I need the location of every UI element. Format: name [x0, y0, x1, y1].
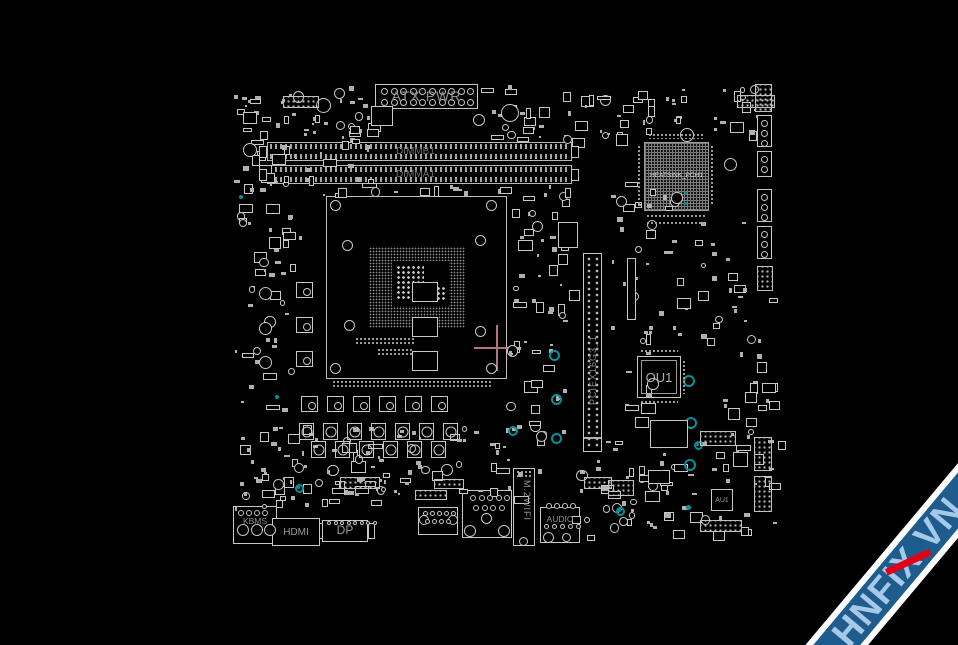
smd-pad — [550, 344, 553, 346]
smd-component — [638, 91, 648, 100]
smd-pad — [320, 152, 322, 157]
smd-pad — [304, 129, 309, 132]
connector-pin — [430, 511, 435, 516]
smd-pad — [350, 101, 355, 103]
smd-pad — [496, 450, 499, 454]
smd-pad — [408, 470, 412, 475]
smd-pad — [600, 130, 602, 133]
vrm-choke — [405, 396, 422, 412]
connector-pin — [576, 524, 581, 529]
mounting-hole — [551, 433, 562, 444]
connector-pin — [560, 524, 565, 529]
capacitor — [456, 461, 462, 467]
pad-row — [377, 348, 413, 357]
smd-component — [491, 135, 503, 140]
connector-pin — [761, 214, 768, 221]
smd-pad — [291, 496, 295, 500]
smd-component — [615, 441, 622, 445]
capacitor — [315, 479, 323, 487]
capacitor — [330, 363, 341, 374]
smd-pad — [568, 111, 572, 116]
smd-pad — [646, 263, 649, 266]
capacitor — [259, 322, 272, 335]
smd-pad — [245, 105, 247, 108]
smd-pad — [356, 177, 362, 181]
smd-pad — [450, 185, 453, 189]
connector-pin — [423, 511, 428, 516]
component-outline — [571, 146, 579, 158]
pad-row — [646, 214, 706, 219]
smd-pad — [348, 164, 354, 168]
smd-pad — [363, 104, 368, 109]
vrm-capacitor — [347, 423, 362, 440]
pad-row — [682, 360, 687, 394]
smd-pad — [248, 222, 251, 225]
smd-pad — [241, 437, 244, 440]
smd-component — [558, 254, 568, 265]
connector-pin — [761, 130, 768, 137]
ou1-chip-label: OU1 — [637, 371, 681, 384]
connector-pin — [761, 120, 768, 127]
capacitor — [273, 479, 284, 490]
smd-pad — [548, 311, 553, 315]
smd-pad — [348, 491, 354, 495]
smd-pad — [742, 222, 746, 224]
smd-pad — [464, 191, 469, 195]
smd-component — [531, 380, 543, 388]
smd-component — [383, 473, 390, 479]
vrm-choke — [327, 396, 344, 412]
vrm-choke — [296, 282, 313, 298]
smd-component — [323, 159, 337, 167]
smd-pad — [712, 252, 718, 256]
smd-pad — [342, 136, 345, 138]
capacitor — [259, 258, 268, 267]
smd-pad — [304, 133, 307, 136]
mounting-hole — [549, 350, 560, 361]
component-outline — [368, 523, 375, 539]
component-outline — [648, 470, 670, 484]
via — [696, 443, 699, 446]
smd-pad — [744, 320, 748, 322]
capacitor — [381, 487, 386, 492]
smd-pad — [474, 431, 479, 434]
smd-component — [627, 519, 633, 525]
capacitor — [344, 320, 355, 331]
pad-row — [646, 221, 706, 225]
connector-pin — [446, 519, 451, 524]
smd-component — [552, 212, 558, 221]
smd-component — [539, 107, 549, 119]
smd-pad — [734, 309, 737, 314]
smd-pad — [264, 269, 266, 273]
vrm-capacitor — [311, 441, 326, 458]
capacitor — [629, 512, 636, 519]
smd-component — [707, 338, 715, 346]
smd-pad — [653, 526, 657, 529]
mounting-hole — [684, 459, 696, 471]
atx-power-label: ATX PWR — [375, 89, 478, 103]
smd-pad — [394, 191, 398, 193]
capacitor — [336, 121, 345, 130]
audio-label: AUDIO — [540, 515, 580, 524]
vrm-choke — [431, 396, 448, 412]
smd-component — [620, 120, 629, 128]
smd-pad — [503, 446, 506, 448]
smd-pad — [234, 95, 238, 100]
smd-pad — [758, 339, 762, 342]
smd-pad — [394, 490, 398, 493]
smd-pad — [248, 100, 251, 102]
smd-component — [290, 264, 297, 272]
pad-row — [648, 133, 704, 139]
smd-pad — [459, 189, 463, 192]
capacitor — [486, 200, 497, 211]
smd-component — [728, 408, 740, 420]
smd-component — [650, 189, 656, 196]
smd-pad — [563, 389, 567, 393]
connector-pin — [373, 521, 377, 525]
smd-pad — [623, 282, 626, 286]
smd-pad — [288, 218, 292, 220]
pin-header — [415, 490, 447, 500]
vrm-choke — [296, 317, 313, 333]
smd-pad — [726, 258, 729, 261]
smd-pad — [538, 469, 543, 474]
smd-component — [420, 188, 430, 196]
connector-pin — [479, 495, 485, 501]
smd-pad — [611, 326, 615, 331]
smd-pad — [723, 89, 726, 92]
connector-pin — [504, 495, 510, 501]
connector-pin — [437, 511, 442, 516]
connector-pin — [562, 503, 568, 509]
smd-pad — [517, 347, 521, 350]
smd-component — [283, 240, 288, 249]
smd-component — [625, 405, 639, 411]
smd-pad — [744, 513, 750, 517]
capacitor — [249, 286, 256, 293]
smd-pad — [563, 320, 568, 322]
connector-pin — [444, 511, 449, 516]
smd-component — [728, 273, 738, 281]
smd-pad — [666, 97, 669, 101]
smd-pad — [672, 99, 676, 102]
smd-component — [260, 131, 268, 139]
smd-pad — [371, 466, 376, 468]
capacitor — [543, 532, 554, 543]
pin-header — [755, 84, 772, 112]
connector-pin — [499, 505, 505, 511]
connector-pin — [761, 241, 768, 248]
smd-pad — [384, 480, 386, 484]
capacitor — [671, 192, 683, 204]
smd-pad — [284, 455, 290, 458]
smd-pad — [269, 228, 273, 231]
smd-component — [526, 108, 531, 119]
smd-pad — [524, 341, 527, 344]
capacitor — [475, 235, 486, 246]
smd-component — [665, 206, 672, 211]
capacitor — [259, 287, 272, 300]
smd-pad — [663, 195, 667, 200]
smd-component — [646, 230, 656, 238]
component-outline — [259, 169, 267, 181]
via — [275, 395, 279, 399]
au1-chip-label: AU1 — [711, 497, 733, 504]
smd-pad — [537, 254, 540, 256]
component-outline — [412, 282, 438, 302]
pad-row — [640, 400, 678, 405]
smd-pad — [248, 304, 254, 308]
capacitor — [630, 499, 636, 505]
smd-pad — [606, 441, 611, 443]
smd-component — [517, 137, 529, 142]
smd-pad — [743, 288, 747, 293]
smd-component — [263, 373, 278, 380]
connector-pin — [546, 503, 552, 509]
connector-pin — [482, 505, 488, 511]
smd-component — [762, 383, 776, 393]
component-outline — [650, 420, 688, 448]
smd-component — [288, 434, 300, 444]
smd-component — [338, 188, 347, 198]
capacitor — [562, 533, 571, 542]
smd-component — [745, 392, 758, 403]
capacitor — [519, 537, 528, 546]
vrm-capacitor — [419, 423, 434, 440]
connector-pin — [568, 524, 573, 529]
smd-component — [322, 499, 328, 507]
vrm-capacitor — [431, 441, 446, 458]
smd-component — [262, 117, 271, 122]
smd-component — [309, 176, 315, 186]
vrm-choke — [301, 396, 318, 412]
capacitor — [475, 326, 486, 337]
mounting-hole — [508, 426, 518, 436]
smd-pad — [544, 193, 547, 197]
capacitor — [529, 210, 536, 217]
smd-pad — [712, 276, 717, 281]
connector-pin — [552, 524, 557, 529]
connector-pin — [425, 519, 430, 524]
smd-component — [673, 530, 685, 538]
smd-component — [597, 96, 612, 100]
smd-pad — [274, 338, 277, 343]
smd-pad — [508, 85, 512, 89]
smd-component — [518, 240, 533, 251]
smd-component — [303, 484, 312, 494]
smd-pad — [562, 430, 566, 434]
capacitor — [635, 246, 642, 253]
dimm-slot-a-label: DIMMA1 — [396, 170, 435, 180]
pad-row — [332, 380, 492, 387]
smd-component — [266, 204, 279, 214]
capacitor — [498, 525, 510, 537]
smd-pad — [412, 431, 417, 435]
smd-component — [677, 278, 685, 286]
via — [618, 509, 621, 512]
smd-pad — [340, 99, 342, 103]
smd-pad — [517, 425, 521, 429]
smd-pad — [613, 448, 618, 451]
smd-pad — [519, 274, 525, 278]
smd-pad — [299, 236, 301, 240]
pin-header — [340, 477, 380, 489]
smd-component — [741, 527, 749, 537]
smd-component — [523, 196, 535, 201]
smd-pad — [235, 350, 238, 353]
smd-component — [250, 99, 262, 104]
smd-pad — [678, 333, 682, 336]
smd-pad — [254, 477, 258, 479]
smd-component — [635, 417, 649, 428]
smd-pad — [272, 345, 276, 347]
smd-pad — [234, 180, 239, 183]
smd-component — [239, 204, 253, 212]
smd-component — [276, 500, 282, 507]
capacitor — [334, 88, 345, 99]
smd-pad — [313, 131, 316, 134]
vrm-capacitor — [383, 441, 398, 458]
smd-pad — [271, 442, 277, 446]
smd-pad — [541, 239, 543, 242]
capacitor — [294, 463, 304, 473]
watermark-text: HNFIX.VN — [824, 489, 958, 645]
component-outline — [571, 169, 579, 181]
smd-pad — [647, 204, 651, 208]
smd-component — [623, 105, 634, 114]
smd-pad — [539, 136, 542, 138]
via — [684, 192, 687, 195]
smd-component — [505, 89, 516, 95]
smd-component — [243, 128, 252, 132]
smd-pad — [720, 121, 726, 123]
pad-row — [355, 337, 415, 345]
pin-header — [754, 476, 772, 512]
smd-pad — [269, 273, 275, 277]
smd-component — [695, 240, 703, 246]
smd-pad — [723, 399, 728, 402]
smd-pad — [305, 503, 310, 507]
smd-pad — [478, 490, 483, 493]
smd-pad — [682, 89, 685, 92]
smd-pad — [622, 501, 627, 506]
smd-component — [531, 405, 539, 415]
smd-pad — [660, 461, 663, 466]
smd-pad — [520, 236, 524, 239]
smd-pad — [560, 284, 562, 286]
capacitor — [243, 143, 257, 157]
smd-component — [723, 464, 729, 472]
connector-pin — [761, 166, 768, 173]
smd-pad — [304, 465, 307, 468]
connector-pin — [761, 156, 768, 163]
smd-component — [362, 183, 377, 188]
capacitor — [646, 116, 653, 123]
smd-pad — [549, 185, 551, 189]
capacitor — [481, 513, 492, 524]
smd-pad — [247, 448, 251, 452]
smd-pad — [241, 401, 244, 403]
smd-component — [569, 290, 579, 301]
smd-pad — [282, 408, 288, 412]
smd-component — [315, 115, 320, 124]
smd-pad — [249, 385, 254, 390]
smd-pad — [663, 453, 666, 456]
smd-pad — [273, 427, 277, 430]
capacitor — [486, 363, 497, 374]
smd-component — [513, 302, 527, 309]
smd-component — [757, 362, 767, 373]
smd-pad — [538, 275, 541, 277]
dp-label: DP — [322, 524, 368, 536]
component-outline — [259, 146, 267, 158]
capacitor — [462, 426, 467, 431]
vrm-capacitor — [323, 423, 338, 440]
smd-pad — [620, 227, 624, 232]
smd-pad — [672, 240, 677, 243]
smd-pad — [260, 188, 266, 192]
smd-pad — [275, 261, 281, 264]
smd-pad — [732, 306, 736, 308]
via — [239, 195, 243, 199]
capacitor — [502, 124, 509, 131]
vrm-capacitor — [359, 441, 374, 458]
pch-chip-label: HEATSINK_PCH1 — [644, 173, 709, 180]
capacitor — [701, 263, 706, 268]
smd-pad — [585, 105, 588, 107]
smd-component — [677, 298, 692, 309]
smd-pad — [285, 313, 289, 316]
smd-component — [746, 418, 757, 427]
smd-component — [481, 88, 494, 93]
smd-pad — [279, 427, 283, 429]
smd-component — [565, 188, 571, 198]
connector-pin — [761, 231, 768, 238]
connector-pin — [761, 194, 768, 201]
smd-component — [646, 334, 652, 345]
smd-component — [529, 421, 541, 425]
crosshair-vertical — [496, 325, 498, 371]
connector-pin — [761, 251, 768, 258]
smd-component — [769, 298, 778, 302]
smd-pad — [665, 513, 671, 518]
smd-pad — [611, 195, 616, 198]
smd-pad — [281, 272, 287, 275]
capacitor — [584, 517, 590, 523]
pcie-key-notch — [584, 437, 601, 439]
smd-component — [283, 232, 296, 240]
smd-pad — [714, 128, 718, 132]
smd-pad — [294, 154, 296, 158]
smd-pad — [240, 482, 244, 486]
pad-row — [710, 145, 715, 205]
capacitor — [259, 356, 272, 369]
capacitor — [536, 431, 547, 442]
smd-pad — [520, 112, 525, 115]
pcie-slot-label: PCIEX16G3_1 — [589, 335, 598, 405]
capacitor — [507, 131, 515, 139]
smd-pad — [626, 476, 629, 479]
smd-pad — [597, 460, 600, 463]
component-outline — [733, 452, 748, 467]
smd-pad — [416, 461, 421, 465]
component-outline — [757, 151, 772, 177]
smd-pad — [672, 103, 676, 106]
m2-wifi-label: M.2WIFI — [522, 480, 531, 521]
capacitor — [724, 158, 737, 171]
